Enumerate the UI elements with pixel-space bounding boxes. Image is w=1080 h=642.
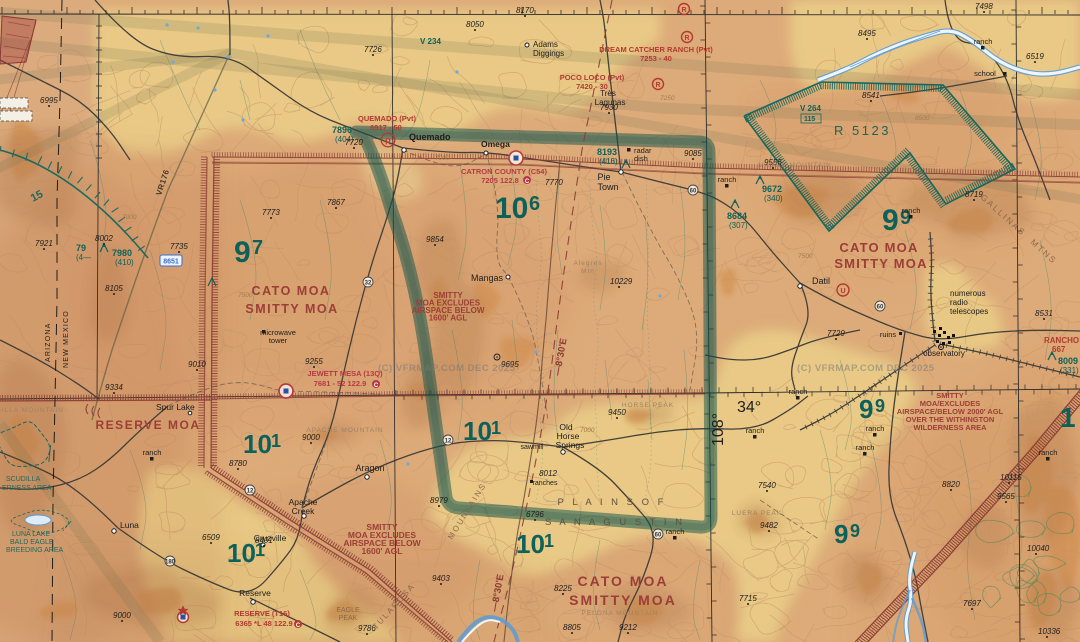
- svg-text:observatory: observatory: [923, 349, 965, 358]
- svg-text:ranch: ranch: [866, 424, 885, 433]
- svg-text:P L A I N S O F: P L A I N S O F: [558, 497, 667, 508]
- svg-text:32: 32: [365, 281, 372, 287]
- svg-text:SMITTY MOA: SMITTY MOA: [569, 592, 677, 608]
- svg-text:9: 9: [850, 521, 860, 541]
- svg-text:8009: 8009: [1058, 356, 1078, 366]
- svg-text:RESERVE MOA: RESERVE MOA: [96, 418, 201, 432]
- svg-text:9672: 9672: [762, 184, 782, 194]
- svg-text:tower: tower: [269, 336, 288, 345]
- svg-text:7735: 7735: [170, 242, 188, 251]
- svg-text:9565: 9565: [997, 492, 1015, 501]
- svg-text:9000: 9000: [302, 433, 320, 442]
- svg-text:8651: 8651: [163, 259, 179, 266]
- svg-text:ranch: ranch: [974, 37, 993, 46]
- svg-text:U: U: [840, 288, 845, 295]
- svg-text:8780: 8780: [229, 459, 247, 468]
- svg-text:DILLA MOUNTAIN: DILLA MOUNTAIN: [0, 407, 64, 414]
- svg-text:6917 - 50: 6917 - 50: [370, 123, 402, 132]
- svg-text:LUERA PEAK: LUERA PEAK: [732, 510, 782, 517]
- svg-text:1: 1: [1060, 402, 1076, 433]
- svg-text:(307): (307): [729, 221, 748, 230]
- svg-text:9450: 9450: [608, 408, 626, 417]
- svg-text:10: 10: [516, 529, 545, 559]
- svg-text:6995: 6995: [40, 96, 58, 105]
- svg-text:Spur Lake: Spur Lake: [156, 402, 195, 412]
- svg-text:V 264: V 264: [800, 104, 821, 113]
- svg-text:Springs: Springs: [556, 440, 585, 450]
- svg-text:6: 6: [529, 193, 540, 215]
- svg-text:C: C: [525, 179, 530, 185]
- svg-text:8805: 8805: [563, 623, 581, 632]
- svg-text:9085: 9085: [684, 149, 702, 158]
- svg-text:CATO MOA: CATO MOA: [578, 573, 669, 589]
- svg-text:10040: 10040: [1027, 544, 1050, 553]
- svg-text:8495: 8495: [858, 29, 876, 38]
- svg-text:numerous: numerous: [950, 289, 986, 298]
- svg-text:S A N A G U S T I N: S A N A G U S T I N: [545, 517, 685, 528]
- svg-text:Quemado: Quemado: [409, 132, 451, 142]
- svg-text:7726: 7726: [364, 45, 382, 54]
- svg-text:10229: 10229: [610, 277, 633, 286]
- svg-text:POCO LOCO (Pvt): POCO LOCO (Pvt): [560, 73, 625, 82]
- svg-text:8541: 8541: [862, 91, 880, 100]
- svg-text:Creek: Creek: [292, 506, 315, 516]
- svg-text:Datil: Datil: [812, 276, 830, 286]
- svg-text:12: 12: [247, 489, 254, 495]
- svg-text:6365 *L 48 122.9: 6365 *L 48 122.9: [235, 619, 292, 628]
- svg-text:HORSE PEAK: HORSE PEAK: [622, 402, 674, 409]
- svg-text:7896: 7896: [332, 125, 352, 135]
- svg-text:9482: 9482: [760, 521, 778, 530]
- svg-text:LUNA LAKE: LUNA LAKE: [12, 531, 50, 538]
- svg-text:7720: 7720: [345, 138, 363, 147]
- svg-text:ERNESS AREA: ERNESS AREA: [2, 485, 52, 492]
- svg-text:9: 9: [875, 396, 885, 416]
- svg-text:DREAM CATCHER RANCH (Pvt): DREAM CATCHER RANCH (Pvt): [599, 45, 713, 54]
- svg-text:R 5123: R 5123: [834, 123, 891, 138]
- svg-text:ranch: ranch: [666, 527, 685, 536]
- svg-text:8012: 8012: [539, 469, 557, 478]
- svg-text:60: 60: [877, 305, 884, 311]
- svg-text:CATO MOA: CATO MOA: [252, 284, 331, 298]
- svg-text:(416): (416): [599, 157, 618, 166]
- svg-text:R: R: [385, 138, 391, 147]
- svg-text:Très: Très: [600, 89, 616, 98]
- svg-text:CATRON COUNTY (C54): CATRON COUNTY (C54): [461, 167, 547, 176]
- svg-text:ranch: ranch: [143, 448, 162, 457]
- svg-text:ranch: ranch: [1039, 448, 1058, 457]
- svg-text:9000: 9000: [113, 611, 131, 620]
- svg-text:79: 79: [76, 243, 86, 253]
- svg-text:ARIZONA: ARIZONA: [45, 322, 52, 362]
- svg-text:dish: dish: [634, 154, 648, 163]
- svg-text:Mtn: Mtn: [581, 268, 595, 275]
- svg-text:R: R: [655, 82, 660, 89]
- svg-text:RANCHO M: RANCHO M: [1044, 336, 1080, 345]
- svg-text:9334: 9334: [105, 383, 123, 392]
- svg-text:MADRE MOUNTAIN: MADRE MOUNTAIN: [758, 162, 831, 169]
- svg-text:7253 - 40: 7253 - 40: [640, 54, 672, 63]
- svg-text:115: 115: [804, 116, 815, 123]
- svg-text:9255: 9255: [305, 357, 323, 366]
- svg-text:Reserve: Reserve: [239, 588, 271, 598]
- svg-text:9403: 9403: [432, 574, 450, 583]
- svg-text:12: 12: [445, 439, 452, 445]
- svg-text:APACHE MOUNTAIN: APACHE MOUNTAIN: [306, 427, 383, 434]
- svg-text:Adams: Adams: [533, 40, 558, 49]
- svg-text:8050: 8050: [466, 20, 484, 29]
- svg-text:8979: 8979: [430, 496, 448, 505]
- svg-text:ranch: ranch: [902, 206, 921, 215]
- svg-text:1: 1: [544, 531, 554, 551]
- svg-text:sawmill: sawmill: [521, 444, 544, 451]
- svg-text:7921: 7921: [35, 239, 53, 248]
- svg-text:7681 - 52 122.9: 7681 - 52 122.9: [314, 379, 367, 388]
- svg-text:9854: 9854: [426, 235, 444, 244]
- svg-text:BREEDING AREA: BREEDING AREA: [6, 547, 64, 554]
- svg-text:QUEMADO (Pvt): QUEMADO (Pvt): [358, 114, 416, 123]
- svg-text:10: 10: [243, 429, 272, 459]
- svg-text:10115: 10115: [1000, 473, 1022, 482]
- svg-text:7205 122.8: 7205 122.8: [481, 176, 519, 185]
- svg-text:1: 1: [491, 418, 501, 438]
- svg-text:V 234: V 234: [420, 37, 441, 46]
- svg-text:Pie: Pie: [597, 172, 610, 182]
- svg-text:8531: 8531: [1035, 309, 1053, 318]
- svg-text:7770: 7770: [545, 178, 563, 187]
- svg-text:7715: 7715: [739, 594, 757, 603]
- svg-text:7773: 7773: [262, 208, 280, 217]
- svg-text:Town: Town: [597, 182, 618, 192]
- svg-text:8401: 8401: [255, 536, 273, 545]
- svg-text:ranch: ranch: [718, 175, 737, 184]
- svg-text:6796: 6796: [526, 510, 544, 519]
- svg-text:(410): (410): [115, 258, 134, 267]
- svg-text:6509: 6509: [202, 533, 220, 542]
- svg-text:7697: 7697: [963, 599, 981, 608]
- svg-text:8105: 8105: [105, 284, 123, 293]
- svg-text:Aragon: Aragon: [355, 463, 384, 473]
- svg-text:R: R: [681, 7, 686, 14]
- svg-text:9: 9: [882, 204, 899, 237]
- svg-text:1600' AGL: 1600' AGL: [429, 314, 468, 323]
- svg-text:NEW MEXICO: NEW MEXICO: [63, 310, 70, 368]
- svg-text:(4—: (4—: [76, 253, 91, 262]
- svg-text:7498: 7498: [975, 2, 993, 11]
- svg-text:7930: 7930: [600, 103, 618, 112]
- svg-text:ranch: ranch: [789, 387, 808, 396]
- svg-text:ranches: ranches: [533, 480, 558, 487]
- svg-text:ruins: ruins: [880, 330, 897, 339]
- svg-text:10: 10: [463, 416, 492, 446]
- svg-text:9212: 9212: [619, 623, 637, 632]
- svg-text:Omega: Omega: [481, 139, 510, 149]
- svg-text:7000: 7000: [580, 427, 595, 434]
- svg-text:7980: 7980: [112, 248, 132, 258]
- svg-text:10: 10: [227, 538, 256, 568]
- svg-text:8193: 8193: [597, 147, 617, 157]
- svg-text:ranch: ranch: [746, 426, 765, 435]
- svg-text:7729: 7729: [827, 329, 845, 338]
- svg-text:60: 60: [690, 189, 697, 195]
- svg-text:SMITTY MOA: SMITTY MOA: [245, 302, 338, 316]
- svg-text:SMITTY MOA: SMITTY MOA: [834, 256, 927, 271]
- svg-text:6519: 6519: [1026, 52, 1044, 61]
- svg-text:(C) VFRMAP.COM DEC 2025: (C) VFRMAP.COM DEC 2025: [378, 363, 516, 374]
- svg-text:(C) VFRMAP.COM DEC 2025: (C) VFRMAP.COM DEC 2025: [797, 363, 935, 374]
- svg-text:radio: radio: [950, 298, 968, 307]
- svg-text:60: 60: [655, 533, 662, 539]
- svg-text:ranch: ranch: [856, 443, 875, 452]
- svg-text:1600' AGL: 1600' AGL: [362, 546, 403, 556]
- svg-text:BALD EAGLE: BALD EAGLE: [10, 539, 54, 546]
- svg-text:Luna: Luna: [120, 520, 139, 530]
- svg-text:Diggings: Diggings: [533, 49, 564, 58]
- svg-text:JEWETT MESA (13Q): JEWETT MESA (13Q): [307, 369, 383, 378]
- svg-text:7500: 7500: [798, 253, 813, 260]
- svg-text:108°: 108°: [710, 413, 727, 446]
- svg-text:6500: 6500: [915, 115, 930, 122]
- svg-text:180: 180: [165, 560, 176, 566]
- svg-text:telescopes: telescopes: [950, 307, 988, 316]
- svg-text:WILDERNESS AREA: WILDERNESS AREA: [913, 423, 987, 432]
- svg-text:8170: 8170: [516, 6, 534, 15]
- svg-text:EAGLE: EAGLE: [336, 607, 360, 614]
- svg-text:C: C: [374, 383, 379, 389]
- svg-text:Alegres: Alegres: [573, 260, 602, 267]
- svg-text:PEAK: PEAK: [339, 615, 358, 622]
- svg-text:7500: 7500: [238, 292, 253, 299]
- svg-text:7867: 7867: [327, 198, 345, 207]
- svg-text:RESERVE (T16): RESERVE (T16): [234, 609, 290, 618]
- svg-text:667: 667: [1052, 345, 1066, 354]
- svg-text:7250: 7250: [660, 95, 675, 102]
- svg-text:7000: 7000: [435, 155, 450, 162]
- svg-text:school: school: [974, 69, 996, 78]
- svg-text:(340): (340): [764, 194, 783, 203]
- svg-text:1: 1: [271, 431, 281, 451]
- svg-text:8002: 8002: [95, 234, 113, 243]
- svg-text:34°: 34°: [737, 399, 761, 416]
- svg-text:SCUDILLA: SCUDILLA: [6, 476, 41, 483]
- svg-text:7: 7: [252, 237, 263, 259]
- svg-text:(331): (331): [1060, 366, 1079, 375]
- svg-text:9010: 9010: [188, 360, 206, 369]
- svg-text:10336: 10336: [1038, 627, 1061, 636]
- svg-text:10: 10: [495, 192, 528, 225]
- svg-text:CATO MOA: CATO MOA: [839, 240, 918, 255]
- svg-text:Mangas: Mangas: [471, 273, 504, 283]
- svg-text:8820: 8820: [942, 480, 960, 489]
- svg-text:8225: 8225: [554, 584, 572, 593]
- svg-text:R: R: [684, 35, 689, 42]
- svg-text:9: 9: [859, 394, 873, 424]
- svg-text:9: 9: [234, 236, 251, 269]
- svg-text:7540: 7540: [758, 481, 776, 490]
- svg-text:9: 9: [834, 519, 848, 549]
- svg-text:8684: 8684: [727, 211, 747, 221]
- svg-text:PELONA MOUNTAIN: PELONA MOUNTAIN: [581, 610, 658, 617]
- svg-text:C: C: [296, 623, 301, 629]
- svg-text:7000: 7000: [122, 214, 137, 221]
